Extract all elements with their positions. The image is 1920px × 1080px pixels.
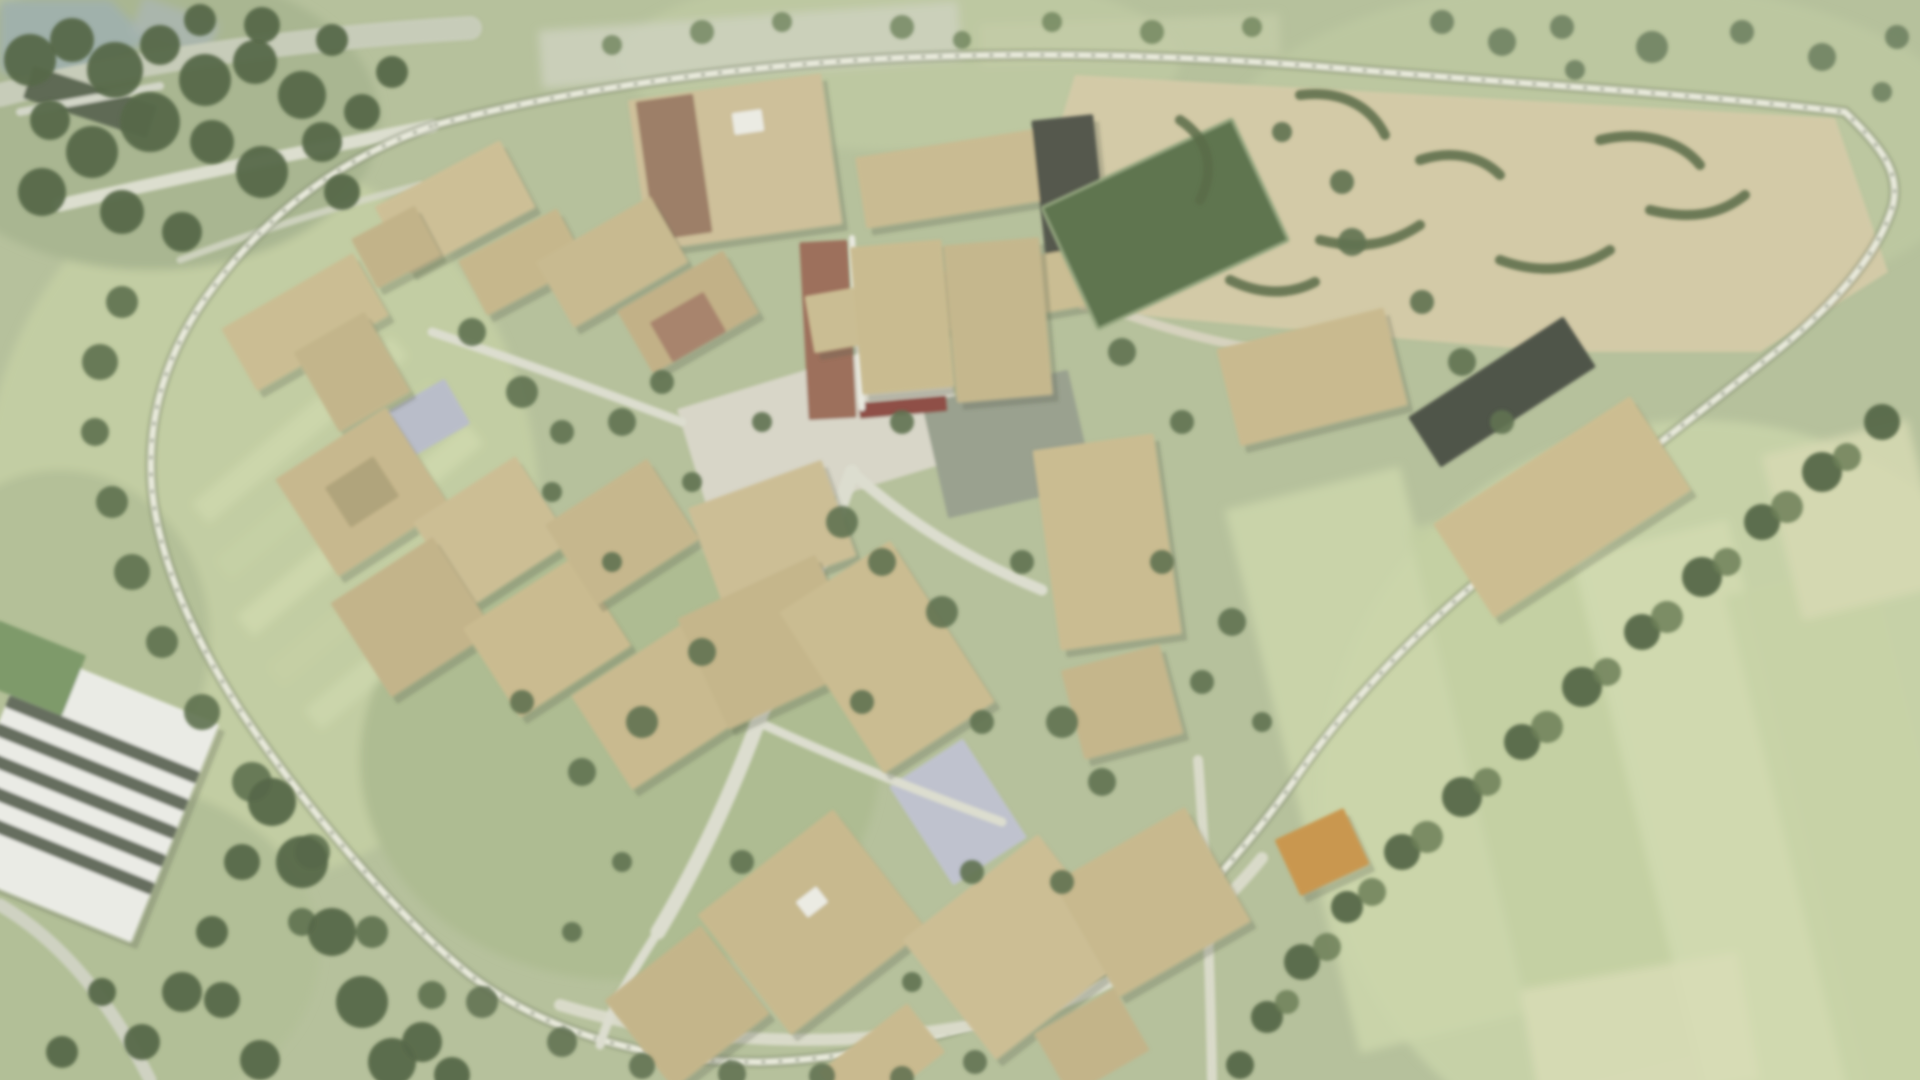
tree bbox=[1864, 404, 1900, 440]
tree bbox=[1313, 933, 1341, 961]
tree bbox=[510, 690, 534, 714]
tree bbox=[224, 844, 260, 880]
tree bbox=[1010, 550, 1034, 574]
tree bbox=[418, 981, 446, 1009]
tree bbox=[466, 986, 498, 1018]
tree bbox=[1330, 170, 1354, 194]
tree bbox=[1872, 82, 1892, 102]
tree bbox=[953, 31, 971, 49]
tree bbox=[278, 71, 326, 119]
tree bbox=[1410, 290, 1434, 314]
tree bbox=[1150, 550, 1174, 574]
tree bbox=[562, 922, 582, 942]
tree bbox=[1885, 25, 1909, 49]
tree bbox=[114, 554, 150, 590]
aerial-rendering: Aerial view of walled campus surrounded … bbox=[0, 0, 1920, 1080]
tree bbox=[550, 420, 574, 444]
tree bbox=[542, 482, 562, 502]
tree bbox=[324, 174, 360, 210]
tree bbox=[100, 190, 144, 234]
tree bbox=[752, 412, 772, 432]
tree bbox=[1140, 20, 1164, 44]
tree bbox=[87, 42, 143, 98]
tree bbox=[650, 370, 674, 394]
tree bbox=[1252, 712, 1272, 732]
tree bbox=[970, 710, 994, 734]
tree bbox=[1050, 870, 1074, 894]
tree bbox=[276, 836, 328, 888]
screenshot-root: Aerial view of walled campus surrounded … bbox=[0, 0, 1920, 1080]
tree bbox=[850, 690, 874, 714]
tree bbox=[1108, 338, 1136, 366]
building bbox=[943, 237, 1052, 403]
tree bbox=[1730, 20, 1754, 44]
aerial-image-canvas bbox=[0, 0, 1920, 1080]
tree bbox=[1046, 706, 1078, 738]
tree bbox=[1490, 410, 1514, 434]
tree bbox=[1565, 60, 1585, 80]
tree bbox=[1430, 10, 1454, 34]
tree bbox=[902, 972, 922, 992]
tree bbox=[568, 758, 596, 786]
tree bbox=[50, 18, 94, 62]
tree bbox=[316, 24, 348, 56]
tree bbox=[302, 122, 342, 162]
tree bbox=[890, 410, 914, 434]
tree bbox=[204, 982, 240, 1018]
tree bbox=[1713, 548, 1741, 576]
tree bbox=[236, 146, 288, 198]
tree bbox=[88, 978, 116, 1006]
tree bbox=[1636, 31, 1668, 63]
tree bbox=[106, 286, 138, 318]
tree bbox=[690, 20, 714, 44]
tree bbox=[308, 908, 356, 956]
tree bbox=[1272, 122, 1292, 142]
tree bbox=[336, 976, 388, 1028]
tree bbox=[1338, 228, 1366, 256]
tree bbox=[682, 472, 702, 492]
tree bbox=[233, 40, 277, 84]
tree bbox=[356, 916, 388, 948]
tree bbox=[1651, 601, 1683, 633]
tree bbox=[120, 92, 180, 152]
tree bbox=[612, 852, 632, 872]
tree bbox=[1550, 15, 1574, 39]
tree bbox=[140, 25, 180, 65]
tree bbox=[1808, 43, 1836, 71]
tree bbox=[506, 376, 538, 408]
tree bbox=[458, 318, 486, 346]
tree bbox=[4, 34, 56, 86]
tree bbox=[890, 15, 914, 39]
tree bbox=[344, 94, 380, 130]
tree bbox=[240, 1040, 280, 1080]
tree bbox=[30, 100, 70, 140]
tree bbox=[868, 548, 896, 576]
tree bbox=[46, 1036, 78, 1068]
tree bbox=[1218, 608, 1246, 636]
tree bbox=[1411, 821, 1443, 853]
tree bbox=[1473, 768, 1501, 796]
tree bbox=[81, 418, 109, 446]
tree bbox=[184, 4, 216, 36]
tree bbox=[124, 1024, 160, 1060]
tree bbox=[376, 56, 408, 88]
tree bbox=[547, 1027, 577, 1057]
tree bbox=[772, 12, 792, 32]
tree bbox=[248, 778, 296, 826]
tree bbox=[602, 552, 622, 572]
tree bbox=[146, 626, 178, 658]
tree bbox=[179, 54, 231, 106]
tree bbox=[1593, 658, 1621, 686]
tree bbox=[1275, 990, 1299, 1014]
tree bbox=[730, 850, 754, 874]
building bbox=[850, 239, 955, 394]
tree bbox=[602, 35, 622, 55]
tree bbox=[18, 168, 66, 216]
tree bbox=[1042, 12, 1062, 32]
tree bbox=[1488, 28, 1516, 56]
tree bbox=[1531, 711, 1563, 743]
tree bbox=[162, 212, 202, 252]
tree bbox=[1331, 891, 1363, 923]
tree bbox=[960, 860, 984, 884]
tree bbox=[826, 506, 858, 538]
tree bbox=[1170, 410, 1194, 434]
tree bbox=[608, 408, 636, 436]
tree bbox=[926, 596, 958, 628]
tree bbox=[688, 638, 716, 666]
tree bbox=[184, 694, 220, 730]
tree bbox=[1771, 491, 1803, 523]
building bbox=[732, 109, 765, 135]
tree bbox=[1358, 878, 1386, 906]
tree bbox=[1448, 348, 1476, 376]
tree bbox=[1226, 1051, 1254, 1079]
tree bbox=[1242, 17, 1262, 37]
tree bbox=[66, 126, 118, 178]
tree bbox=[196, 916, 228, 948]
tree bbox=[190, 120, 234, 164]
tree bbox=[1088, 768, 1116, 796]
tree bbox=[244, 7, 280, 43]
tree bbox=[1833, 443, 1861, 471]
tree bbox=[82, 344, 118, 380]
tree bbox=[402, 1022, 442, 1062]
tree bbox=[162, 972, 202, 1012]
tree bbox=[963, 1050, 987, 1074]
tree bbox=[626, 706, 658, 738]
tree bbox=[1190, 670, 1214, 694]
tree bbox=[96, 486, 128, 518]
tree bbox=[629, 1053, 655, 1079]
